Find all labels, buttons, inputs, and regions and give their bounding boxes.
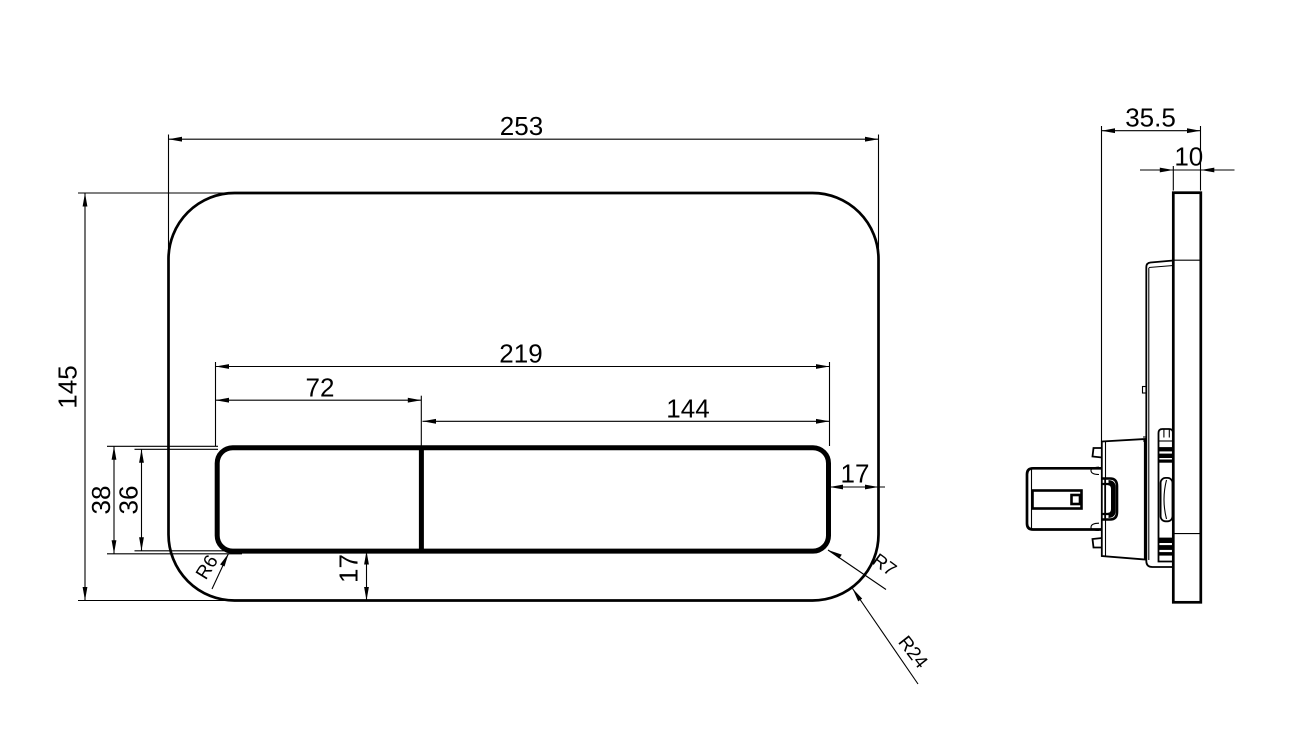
svg-text:144: 144 (666, 394, 709, 424)
svg-text:145: 145 (53, 365, 83, 408)
svg-text:253: 253 (500, 111, 543, 141)
svg-text:72: 72 (306, 373, 335, 403)
svg-text:36: 36 (114, 486, 144, 515)
svg-text:17: 17 (841, 459, 870, 489)
svg-text:35.5: 35.5 (1125, 103, 1176, 133)
svg-text:38: 38 (86, 486, 116, 515)
svg-text:219: 219 (499, 339, 542, 369)
svg-text:10: 10 (1174, 142, 1203, 172)
svg-text:17: 17 (334, 554, 364, 583)
